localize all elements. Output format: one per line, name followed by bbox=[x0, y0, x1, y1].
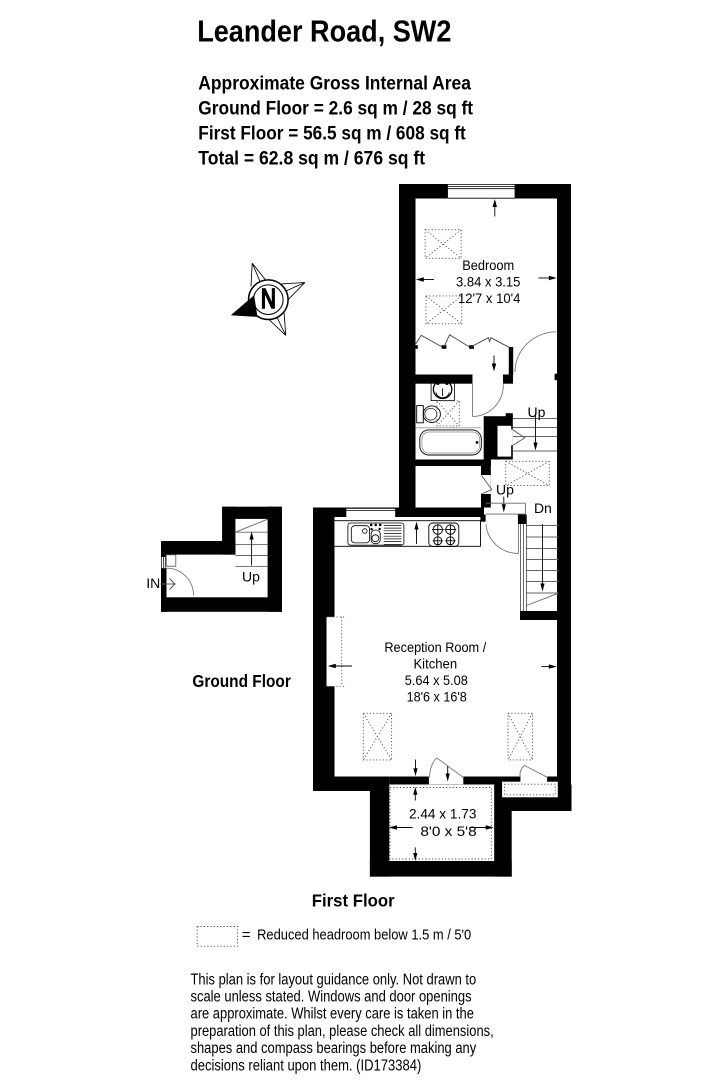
svg-text:First Floor: First Floor bbox=[312, 890, 395, 910]
svg-text:Reduced headroom below 1.5 m /: Reduced headroom below 1.5 m / 5'0 bbox=[257, 927, 471, 944]
svg-text:Bedroom: Bedroom bbox=[462, 257, 514, 273]
svg-text:Reception Room /: Reception Room / bbox=[384, 639, 486, 655]
svg-text:IN: IN bbox=[146, 575, 160, 591]
svg-text:shapes and compass bearings be: shapes and compass bearings before makin… bbox=[191, 1040, 477, 1057]
svg-text:Ground Floor = 2.6 sq m / 28 s: Ground Floor = 2.6 sq m / 28 sq ft bbox=[198, 97, 473, 119]
svg-text:3.84 x 3.15: 3.84 x 3.15 bbox=[456, 274, 521, 290]
svg-text:2.44 x 1.73: 2.44 x 1.73 bbox=[409, 806, 477, 822]
svg-text:scale unless stated. Windows a: scale unless stated. Windows and door op… bbox=[191, 989, 472, 1006]
svg-text:Ground Floor: Ground Floor bbox=[192, 671, 291, 691]
svg-text:8'0 x 5'8: 8'0 x 5'8 bbox=[420, 823, 477, 839]
svg-text:preparation of this plan, plea: preparation of this plan, please check a… bbox=[191, 1023, 494, 1040]
svg-text:Leander Road, SW2: Leander Road, SW2 bbox=[197, 13, 451, 48]
svg-text:This plan is for layout guidan: This plan is for layout guidance only. N… bbox=[191, 971, 477, 988]
svg-text:First Floor = 56.5 sq m / 608: First Floor = 56.5 sq m / 608 sq ft bbox=[198, 122, 466, 144]
svg-text:12'7 x 10'4: 12'7 x 10'4 bbox=[458, 290, 521, 306]
svg-text:decisions reliant upon them. (: decisions reliant upon them. (ID173384) bbox=[191, 1057, 422, 1074]
svg-text:5.64 x 5.08: 5.64 x 5.08 bbox=[405, 672, 468, 688]
svg-text:Dn: Dn bbox=[534, 500, 552, 516]
svg-text:Total = 62.8 sq m / 676 sq ft: Total = 62.8 sq m / 676 sq ft bbox=[198, 147, 425, 169]
svg-text:Up: Up bbox=[528, 404, 546, 420]
svg-text:Kitchen: Kitchen bbox=[413, 655, 457, 671]
svg-text:Up: Up bbox=[496, 482, 514, 498]
svg-text:Approximate Gross Internal Are: Approximate Gross Internal Area bbox=[198, 72, 471, 94]
svg-text:Up: Up bbox=[242, 569, 260, 585]
svg-text:18'6 x 16'8: 18'6 x 16'8 bbox=[407, 688, 467, 704]
svg-text:=: = bbox=[242, 927, 251, 944]
svg-text:are approximate. Whilst every: are approximate. Whilst every care is ta… bbox=[191, 1006, 474, 1023]
